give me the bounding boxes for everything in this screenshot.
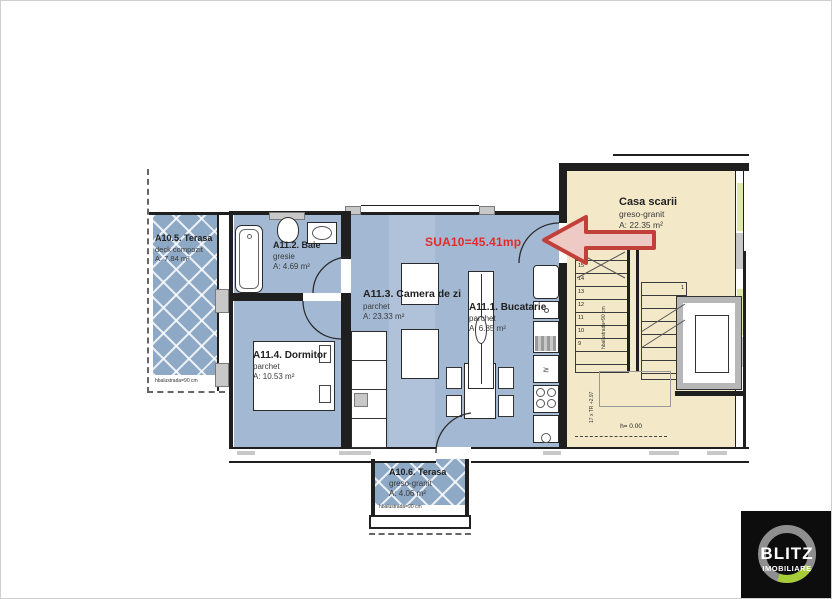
stairs-break-line: [641, 304, 685, 332]
floor-plan-page: ≳ 16 15 14 13 12 11 10 9 1 2 3 4 5 6 7 h…: [0, 0, 832, 599]
entrance-arrow: [544, 217, 654, 263]
door-arc-bedroom: [303, 301, 341, 339]
door-arc-terrace: [436, 413, 471, 453]
plan-overlay: [1, 1, 832, 599]
stairs-break-line: [641, 320, 685, 348]
door-arc-bathroom: [313, 257, 349, 293]
logo-text-imobiliare: IMOBILIARE: [762, 564, 811, 573]
logo-text-blitz: BLITZ: [760, 544, 813, 563]
blitz-logo: BLITZ IMOBILIARE: [741, 511, 832, 599]
blitz-logo-graphic: BLITZ IMOBILIARE: [741, 511, 832, 599]
